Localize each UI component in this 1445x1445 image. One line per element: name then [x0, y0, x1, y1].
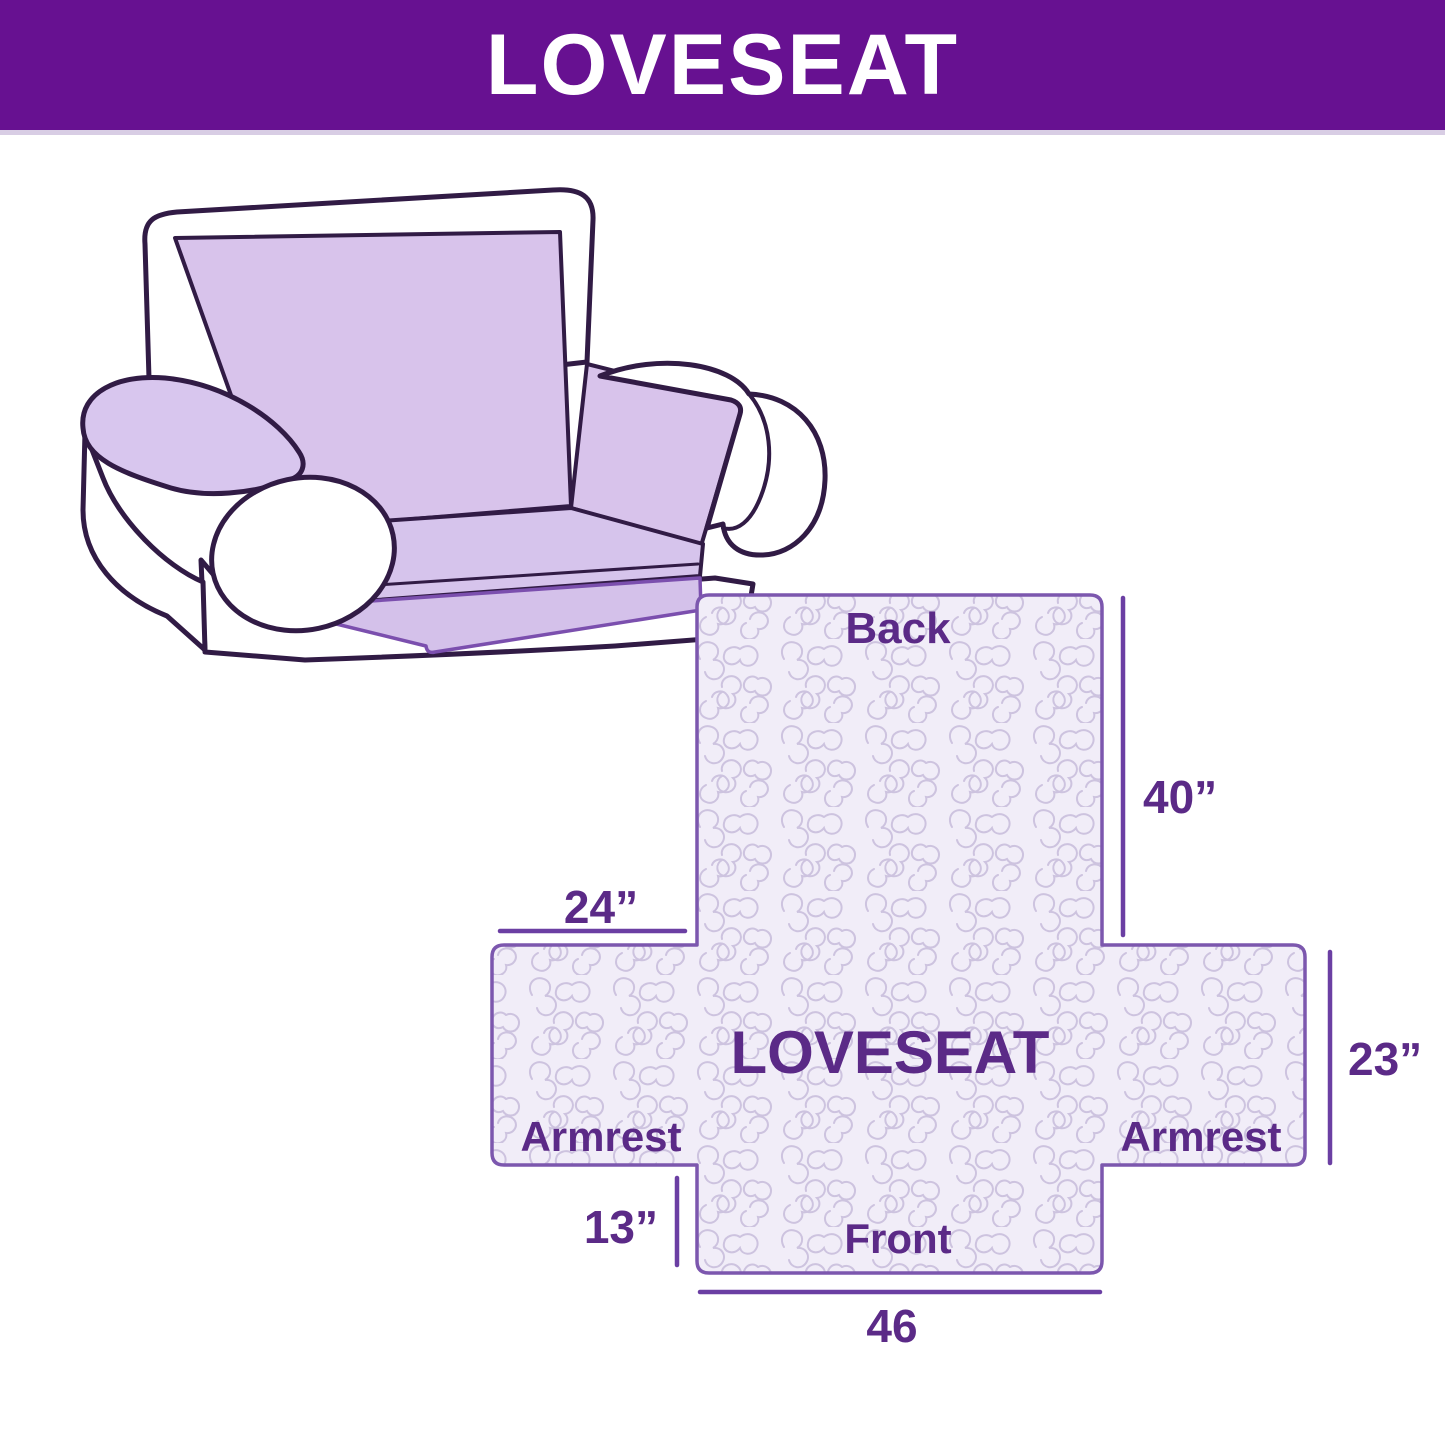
front-width-dim: 46 [866, 1300, 917, 1352]
cover-diagram: Back LOVESEAT Armrest Armrest Front 40” … [440, 555, 1445, 1415]
armrest-height-dim: 23” [1348, 1033, 1422, 1085]
cover-shape [492, 595, 1305, 1273]
back-height-dim: 40” [1143, 771, 1217, 823]
header-bar: LOVESEAT [0, 0, 1445, 135]
center-label: LOVESEAT [731, 1019, 1050, 1086]
page-title: LOVESEAT [486, 22, 959, 108]
side-width-dim: 24” [564, 881, 638, 933]
armrest-right-label: Armrest [1120, 1113, 1281, 1160]
armrest-left-label: Armrest [520, 1113, 681, 1160]
front-drop-dim: 13” [584, 1201, 658, 1253]
infographic-canvas: LOVESEAT [0, 0, 1445, 1445]
front-panel-label: Front [844, 1215, 951, 1262]
back-panel-label: Back [845, 604, 951, 653]
